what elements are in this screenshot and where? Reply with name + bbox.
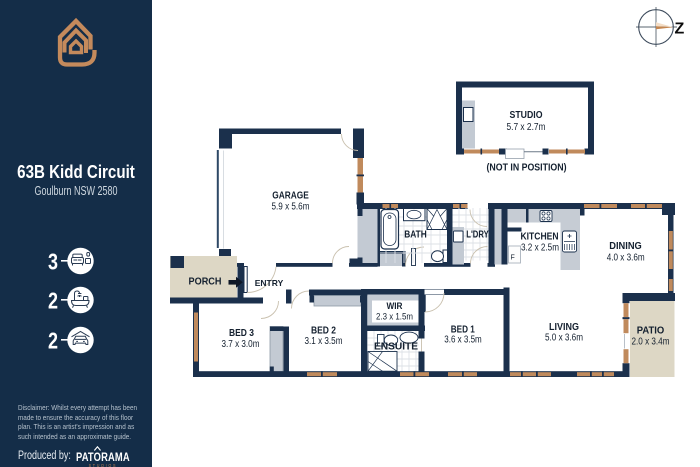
svg-text:3.6 x 3.5m: 3.6 x 3.5m <box>444 335 482 346</box>
svg-text:BED 2: BED 2 <box>311 326 336 337</box>
svg-text:DINING: DINING <box>609 241 642 252</box>
svg-text:L'DRY: L'DRY <box>466 230 489 241</box>
svg-text:5.7 x 2.7m: 5.7 x 2.7m <box>507 122 546 133</box>
svg-text:2.3 x 1.5m: 2.3 x 1.5m <box>376 312 413 323</box>
svg-text:PORCH: PORCH <box>189 277 222 288</box>
svg-text:LIVING: LIVING <box>549 322 579 333</box>
svg-text:4.0 x 3.6m: 4.0 x 3.6m <box>607 253 645 264</box>
svg-text:5.0 x 3.6m: 5.0 x 3.6m <box>545 333 583 344</box>
svg-text:GARAGE: GARAGE <box>272 191 309 202</box>
svg-text:STUDIO: STUDIO <box>510 109 543 121</box>
svg-text:ENSUITE: ENSUITE <box>374 342 418 353</box>
svg-text:F: F <box>511 255 515 262</box>
svg-text:5.9 x 5.6m: 5.9 x 5.6m <box>272 202 310 213</box>
svg-text:ENTRY: ENTRY <box>255 278 284 288</box>
svg-text:3.2 x 2.5m: 3.2 x 2.5m <box>521 243 559 254</box>
svg-text:PATIO: PATIO <box>637 326 665 337</box>
svg-text:Z: Z <box>675 21 685 38</box>
svg-text:BATH: BATH <box>404 230 427 241</box>
svg-text:2.0 x 3.4m: 2.0 x 3.4m <box>632 337 670 348</box>
svg-text:(NOT IN POSITION): (NOT IN POSITION) <box>487 162 567 174</box>
svg-text:3.1 x 3.5m: 3.1 x 3.5m <box>305 336 343 347</box>
svg-text:KITCHEN: KITCHEN <box>521 232 559 243</box>
svg-text:WIR: WIR <box>387 301 403 312</box>
svg-text:BED 3: BED 3 <box>229 328 254 339</box>
svg-text:3.7 x 3.0m: 3.7 x 3.0m <box>222 339 260 350</box>
